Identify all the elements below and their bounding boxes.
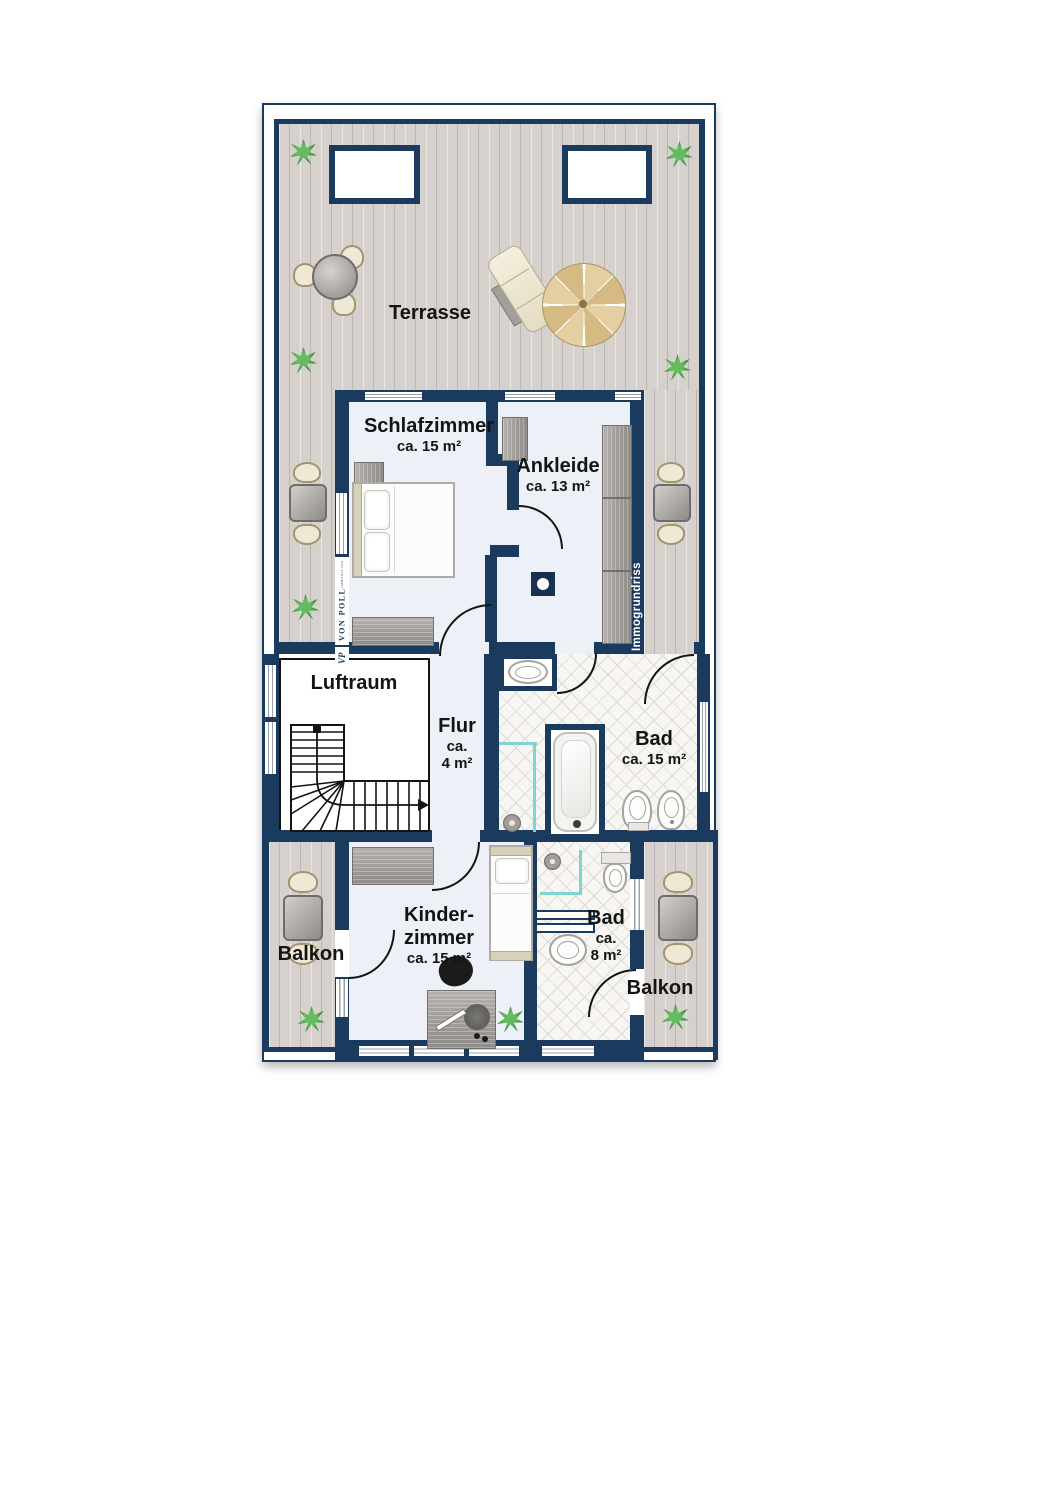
bed-headboard (491, 847, 531, 856)
bathtub-faucet (573, 820, 581, 828)
window (265, 722, 276, 774)
skylight (329, 145, 420, 204)
wall (694, 642, 705, 654)
window (615, 392, 641, 400)
dining-table (312, 254, 358, 300)
bistro-table (658, 895, 698, 941)
brand-monogram: VP (335, 647, 349, 669)
bidet (657, 790, 685, 830)
toilet-bowl (629, 796, 646, 820)
desk (427, 990, 496, 1049)
window (359, 1046, 409, 1056)
wall (630, 930, 644, 969)
brand-watermark: VON POLL IMMOBILIEN (335, 557, 349, 645)
pillow (364, 532, 390, 572)
wall (699, 119, 705, 654)
wall (713, 842, 718, 1060)
bathtub-enclosure (545, 724, 605, 840)
window (265, 665, 276, 717)
chair (663, 943, 693, 965)
skylight (562, 145, 652, 204)
chair (288, 871, 318, 893)
room-label-kinderzimmer: Kinder- zimmer ca. 15 m² (404, 904, 474, 967)
shelf (535, 923, 595, 933)
glasses (482, 1036, 488, 1042)
chair (663, 871, 693, 893)
duvet-crease (394, 486, 395, 574)
bathtub (553, 732, 597, 832)
wall (264, 842, 269, 1052)
washbasin (508, 660, 548, 684)
pillow (495, 858, 529, 884)
pen (435, 1008, 467, 1031)
shower-glass (533, 742, 536, 832)
chair (293, 462, 321, 483)
room-label-bad: Bad ca. 15 m² (622, 728, 686, 768)
room-label-balkon-links: Balkon (278, 943, 345, 966)
bistro-table (653, 484, 691, 522)
floor-plan-page: Terrasse Schlafzimmer ca. 15 m² Ankleide… (0, 0, 1060, 1500)
shower-head (544, 853, 561, 870)
dresser (352, 617, 434, 646)
toilet-tank (628, 822, 649, 831)
wall (484, 654, 499, 842)
terrace-strip-left (279, 390, 335, 654)
shower-glass (499, 742, 537, 745)
room-label-balkon-rechts: Balkon (627, 977, 694, 1000)
bistro-table (289, 484, 327, 522)
pillow (364, 490, 390, 530)
toilet (622, 790, 652, 830)
room-label-luftraum: Luftraum (311, 672, 398, 695)
terrace-strip-right (644, 390, 699, 654)
shower-glass (540, 892, 582, 895)
wardrobe (602, 425, 632, 498)
chair (657, 462, 685, 483)
window (336, 979, 348, 1017)
wardrobe (602, 571, 632, 644)
bidet-bowl (664, 797, 679, 818)
bistro-table (283, 895, 323, 941)
window (505, 392, 555, 400)
toilet-bowl (603, 863, 627, 893)
shower-head (503, 814, 521, 832)
window (542, 1046, 594, 1056)
washbasin-bowl (557, 941, 579, 959)
wall (274, 119, 279, 654)
window (631, 879, 643, 930)
bed-headboard (354, 484, 362, 576)
bed-footboard (491, 951, 531, 960)
parasol-pole (579, 300, 587, 308)
single-bed (489, 845, 533, 961)
wall (637, 1047, 718, 1052)
room-label-flur: Flur ca. 4 m² (438, 715, 476, 773)
desk-lamp (464, 1004, 490, 1030)
wall (489, 642, 555, 654)
shower-glass (579, 850, 582, 895)
staircase-symbol (290, 724, 430, 832)
chair (293, 524, 321, 545)
window (336, 493, 347, 554)
toilet-bowl-inner (609, 869, 622, 887)
chair (657, 524, 685, 545)
room-label-ankleide: Ankleide ca. 13 m² (516, 455, 599, 495)
chimney-flue (537, 578, 549, 590)
wall (335, 842, 349, 930)
room-label-schlafzimmer: Schlafzimmer ca. 15 m² (364, 415, 494, 455)
window (700, 702, 708, 792)
blanket-line (492, 893, 530, 894)
wardrobe (352, 847, 434, 885)
washbasin-bowl (515, 666, 541, 679)
shelf (535, 910, 595, 920)
wall (630, 842, 644, 879)
bathtub-basin (561, 740, 591, 818)
window (365, 392, 422, 400)
wall (264, 1047, 347, 1052)
wall (274, 119, 705, 124)
plan-credit-watermark: Immogrundriss (630, 558, 644, 655)
wardrobe (602, 498, 632, 571)
glasses (474, 1033, 480, 1039)
floor-plan: Terrasse Schlafzimmer ca. 15 m² Ankleide… (262, 103, 716, 1062)
chimney (531, 572, 555, 596)
double-bed (352, 482, 455, 578)
room-label-terrasse: Terrasse (389, 302, 471, 325)
washbasin (549, 934, 587, 966)
room-label-bad-klein: Bad ca. 8 m² (587, 907, 625, 965)
bidet-drain (670, 820, 674, 824)
